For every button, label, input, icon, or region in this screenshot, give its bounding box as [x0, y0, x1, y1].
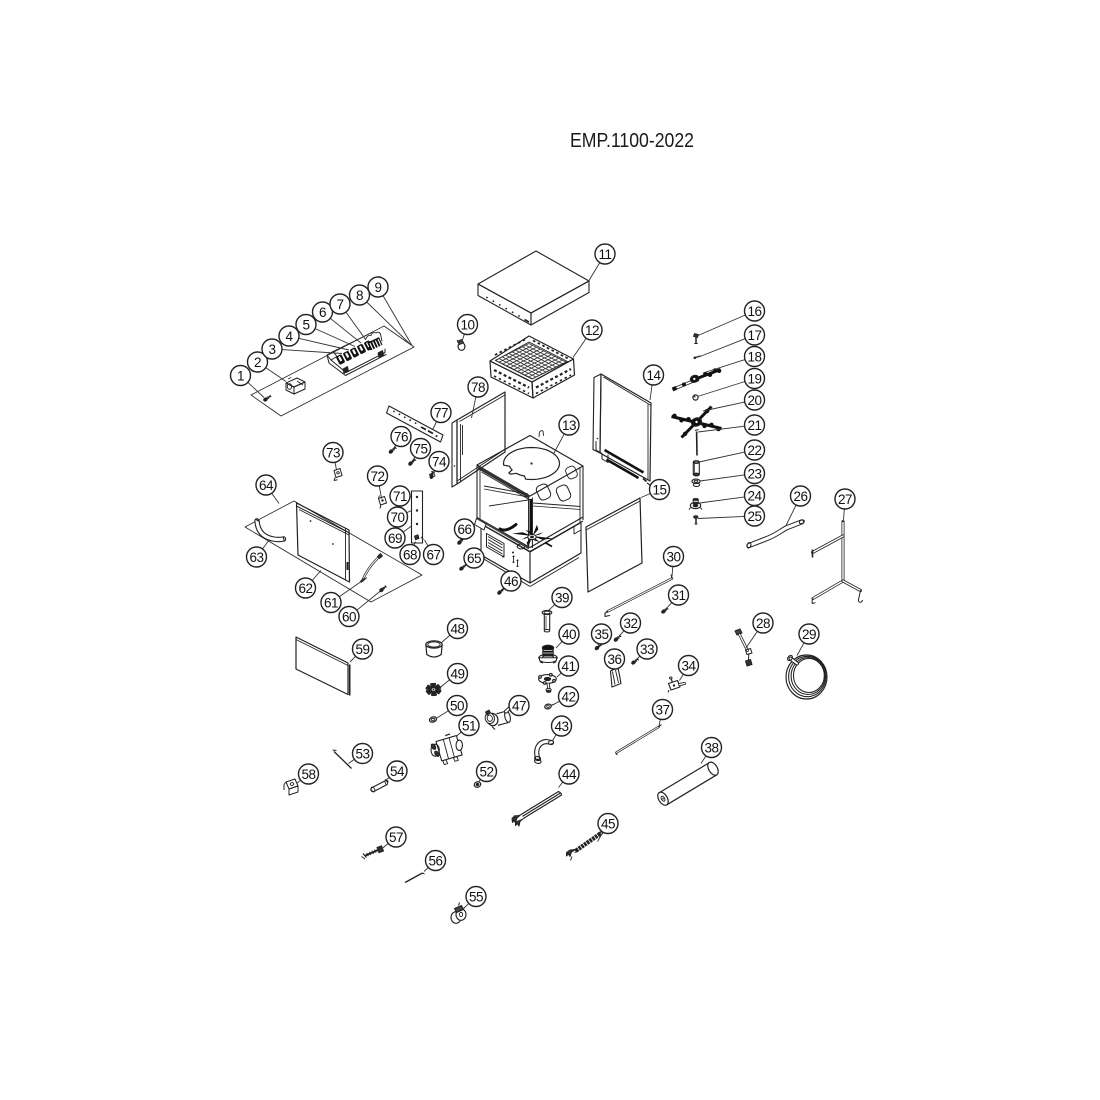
svg-text:50: 50	[450, 698, 464, 713]
svg-text:63: 63	[249, 550, 263, 565]
svg-text:25: 25	[747, 509, 761, 524]
svg-text:54: 54	[390, 764, 405, 779]
svg-text:59: 59	[355, 642, 369, 657]
svg-text:33: 33	[640, 642, 654, 657]
svg-text:52: 52	[479, 764, 493, 779]
svg-text:51: 51	[462, 718, 476, 733]
svg-text:18: 18	[747, 349, 761, 364]
svg-text:45: 45	[601, 816, 615, 831]
svg-text:64: 64	[259, 478, 274, 493]
svg-text:74: 74	[432, 454, 447, 469]
svg-text:7: 7	[336, 297, 343, 312]
svg-text:4: 4	[285, 329, 293, 344]
svg-text:11: 11	[598, 247, 611, 262]
svg-text:1: 1	[237, 368, 244, 383]
svg-text:19: 19	[747, 371, 761, 386]
svg-text:46: 46	[504, 574, 518, 589]
svg-text:29: 29	[802, 627, 816, 642]
svg-text:55: 55	[469, 889, 483, 904]
svg-text:24: 24	[747, 488, 762, 503]
svg-text:78: 78	[471, 380, 485, 395]
svg-text:70: 70	[390, 510, 404, 525]
svg-text:6: 6	[319, 305, 326, 320]
svg-text:5: 5	[302, 317, 309, 332]
svg-text:44: 44	[562, 767, 577, 782]
svg-text:40: 40	[562, 627, 576, 642]
svg-text:65: 65	[467, 551, 481, 566]
svg-text:39: 39	[555, 590, 569, 605]
svg-text:73: 73	[326, 445, 340, 460]
svg-text:34: 34	[681, 658, 696, 673]
svg-text:75: 75	[413, 441, 427, 456]
svg-text:2: 2	[254, 355, 261, 370]
svg-text:72: 72	[370, 469, 384, 484]
svg-text:22: 22	[747, 443, 761, 458]
svg-text:38: 38	[704, 740, 718, 755]
svg-text:76: 76	[394, 429, 408, 444]
svg-text:30: 30	[666, 549, 680, 564]
svg-text:69: 69	[388, 531, 402, 546]
svg-text:41: 41	[561, 659, 575, 674]
svg-text:71: 71	[393, 489, 407, 504]
svg-text:17: 17	[747, 328, 761, 343]
svg-text:68: 68	[403, 547, 417, 562]
svg-text:58: 58	[301, 767, 315, 782]
svg-text:49: 49	[450, 666, 464, 681]
svg-text:8: 8	[356, 288, 363, 303]
svg-text:62: 62	[298, 581, 312, 596]
svg-text:EMP.1100-2022: EMP.1100-2022	[570, 129, 694, 152]
svg-text:77: 77	[434, 405, 448, 420]
svg-text:66: 66	[457, 522, 471, 537]
svg-text:9: 9	[374, 280, 381, 295]
svg-text:47: 47	[512, 698, 526, 713]
svg-text:12: 12	[585, 323, 599, 338]
svg-text:28: 28	[756, 616, 770, 631]
svg-text:14: 14	[646, 368, 661, 383]
svg-text:56: 56	[428, 853, 442, 868]
svg-text:43: 43	[554, 719, 568, 734]
svg-text:60: 60	[342, 609, 356, 624]
svg-text:57: 57	[389, 830, 403, 845]
svg-text:32: 32	[623, 616, 637, 631]
svg-text:13: 13	[562, 418, 576, 433]
svg-text:10: 10	[460, 317, 474, 332]
svg-text:61: 61	[324, 595, 338, 610]
svg-text:48: 48	[450, 621, 464, 636]
svg-text:35: 35	[594, 627, 608, 642]
svg-text:37: 37	[655, 702, 669, 717]
svg-text:21: 21	[747, 418, 761, 433]
svg-text:3: 3	[268, 342, 275, 357]
svg-text:36: 36	[607, 652, 621, 667]
svg-text:53: 53	[355, 746, 369, 761]
svg-text:16: 16	[747, 304, 761, 319]
svg-text:15: 15	[652, 482, 666, 497]
svg-text:42: 42	[561, 689, 575, 704]
svg-text:31: 31	[671, 588, 685, 603]
svg-text:67: 67	[426, 547, 440, 562]
svg-text:23: 23	[747, 466, 761, 481]
svg-text:27: 27	[838, 492, 852, 507]
svg-text:20: 20	[747, 393, 761, 408]
svg-text:26: 26	[793, 489, 807, 504]
